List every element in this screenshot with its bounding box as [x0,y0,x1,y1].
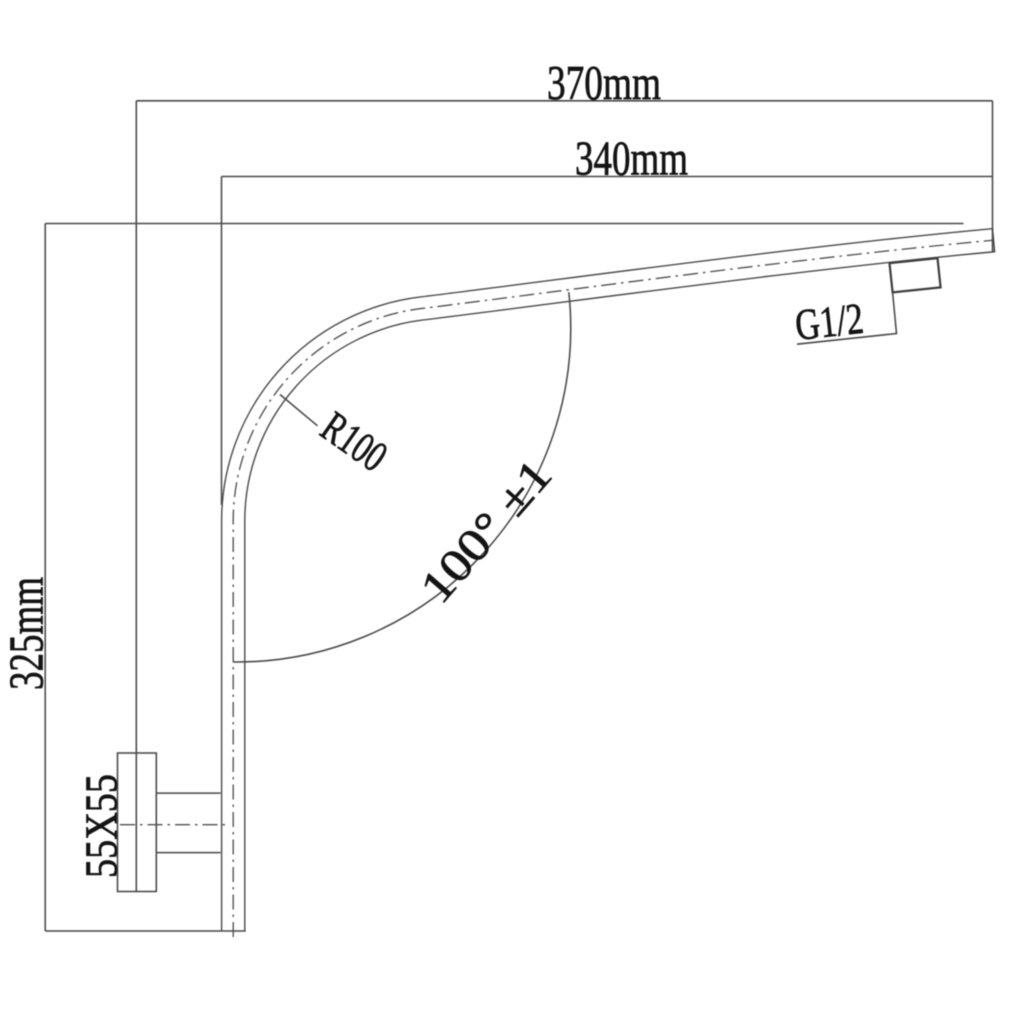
svg-text:G1/2: G1/2 [793,294,866,350]
svg-text:370mm: 370mm [547,55,661,110]
svg-text:55X55: 55X55 [76,774,127,878]
svg-text:325mm: 325mm [0,577,54,690]
svg-text:340mm: 340mm [575,131,688,186]
